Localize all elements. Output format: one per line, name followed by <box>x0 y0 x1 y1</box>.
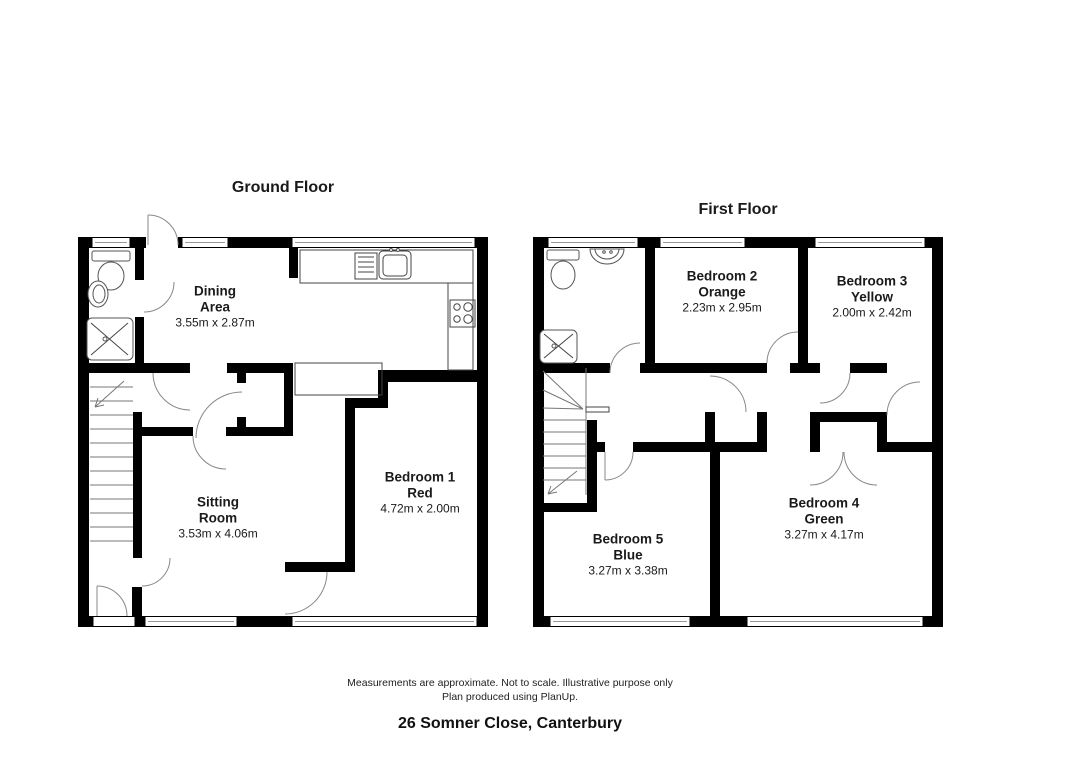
room-label-bedroom3: Bedroom 3 Yellow 2.00m x 2.42m <box>832 274 911 321</box>
room-name: Orange <box>682 285 761 301</box>
room-name: Bedroom 3 <box>832 274 911 290</box>
bedroom1-door-arc <box>285 572 327 614</box>
room-dims: 3.27m x 3.38m <box>588 564 667 578</box>
alcove-door-arc <box>887 382 920 415</box>
closet-double-door-arc <box>810 452 877 485</box>
room-label-sitting: Sitting Room 3.53m x 4.06m <box>178 495 257 542</box>
room-label-bedroom4: Bedroom 4 Green 3.27m x 4.17m <box>784 496 863 543</box>
room-dims: 3.55m x 2.87m <box>175 316 254 330</box>
sink-icon <box>590 249 624 264</box>
stair-rail <box>586 407 609 412</box>
toilet-icon <box>547 250 579 289</box>
room-name: Area <box>175 300 254 316</box>
wardrobe-icon <box>295 363 382 395</box>
room-name: Green <box>784 512 863 528</box>
window <box>292 617 477 627</box>
room-label-bedroom5: Bedroom 5 Blue 3.27m x 3.38m <box>588 532 667 579</box>
room-name: Bedroom 5 <box>588 532 667 548</box>
window <box>815 238 925 248</box>
shower-icon <box>87 318 133 360</box>
front-door-arc <box>97 586 127 616</box>
room-name: Bedroom 1 <box>380 470 459 486</box>
bathroom-door-arc <box>144 282 174 312</box>
bedroom3-door-arc <box>820 373 850 403</box>
window <box>548 238 638 248</box>
footer: Measurements are approximate. Not to sca… <box>0 676 1020 733</box>
window <box>145 617 237 627</box>
room-label-bedroom2: Bedroom 2 Orange 2.23m x 2.95m <box>682 269 761 316</box>
first-floor-plan: Bedroom 2 Orange 2.23m x 2.95m Bedroom 3… <box>525 197 951 637</box>
dining-door-arc <box>153 373 190 410</box>
window <box>292 238 475 248</box>
window <box>182 238 228 248</box>
room-name: Red <box>380 486 459 502</box>
kitchen-sink-icon <box>355 249 411 280</box>
room-name: Sitting <box>178 495 257 511</box>
room-name: Bedroom 2 <box>682 269 761 285</box>
front-door-threshold <box>93 617 135 627</box>
room-dims: 2.23m x 2.95m <box>682 301 761 315</box>
room-name: Bedroom 4 <box>784 496 863 512</box>
room-dims: 2.00m x 2.42m <box>832 306 911 320</box>
window <box>660 238 745 248</box>
window <box>550 617 690 627</box>
hob-icon <box>450 300 475 327</box>
ground-walls <box>78 237 488 627</box>
entrance-opening <box>146 237 178 248</box>
room-name: Yellow <box>832 290 911 306</box>
room-dims: 3.27m x 4.17m <box>784 528 863 542</box>
room-name: Dining <box>175 284 254 300</box>
window <box>92 238 130 248</box>
window <box>747 617 923 627</box>
kitchen <box>300 249 475 371</box>
disclaimer-line-1: Measurements are approximate. Not to sca… <box>0 676 1020 690</box>
vestibule-door-arc <box>142 558 170 586</box>
room-name: Blue <box>588 548 667 564</box>
sink-icon <box>88 281 108 307</box>
ground-floor-title: Ground Floor <box>70 179 496 197</box>
disclaimer-line-2: Plan produced using PlanUp. <box>0 690 1020 704</box>
staircase-icon <box>543 368 609 495</box>
staircase-icon <box>90 381 133 541</box>
room-dims: 3.53m x 4.06m <box>178 527 257 541</box>
first-bathroom <box>540 249 624 363</box>
closet-door-arc <box>710 376 746 412</box>
room-name: Room <box>178 511 257 527</box>
ground-floor-plan: Dining Area 3.55m x 2.87m Sitting Room 3… <box>70 197 496 637</box>
room-dims: 4.72m x 2.00m <box>380 502 459 516</box>
bedroom5-door-arc <box>605 452 633 480</box>
sitting-door-arc <box>193 436 226 469</box>
shower-icon <box>540 330 577 363</box>
room-label-bedroom1: Bedroom 1 Red 4.72m x 2.00m <box>380 470 459 517</box>
ground-bathroom <box>87 251 133 360</box>
bathroom-door-arc <box>610 343 640 373</box>
floorplan-page: Ground Floor <box>0 0 1086 768</box>
property-address: 26 Somner Close, Canterbury <box>0 715 1020 733</box>
ground-floor-drawing <box>70 197 496 637</box>
room-label-dining: Dining Area 3.55m x 2.87m <box>175 284 254 331</box>
bedroom2-door-arc <box>767 332 798 363</box>
